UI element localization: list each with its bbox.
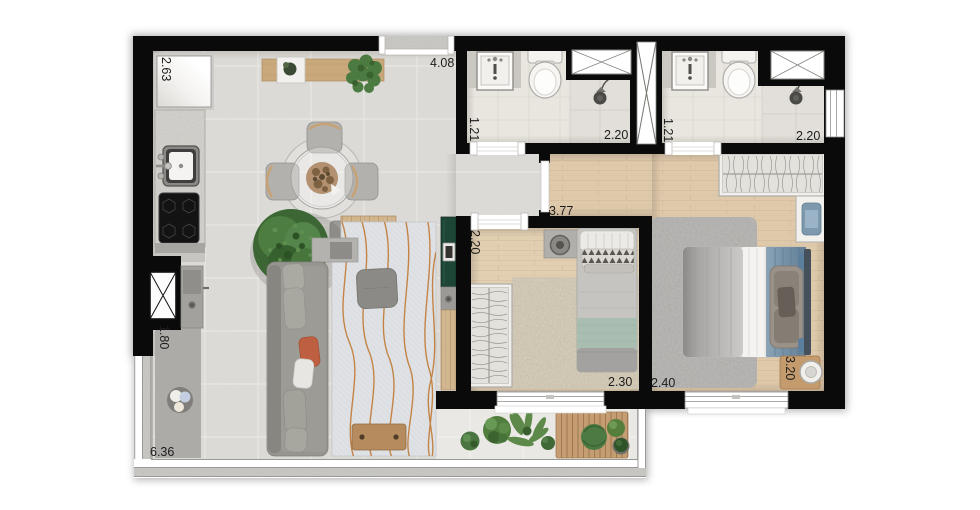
- svg-text:2.20: 2.20: [796, 129, 820, 143]
- svg-text:3.20: 3.20: [783, 356, 797, 380]
- svg-text:1.80: 1.80: [157, 325, 171, 349]
- svg-text:6.36: 6.36: [150, 445, 174, 459]
- svg-text:1.21: 1.21: [661, 118, 675, 142]
- svg-text:2.63: 2.63: [159, 57, 173, 81]
- svg-text:2.30: 2.30: [608, 375, 632, 389]
- svg-text:3.77: 3.77: [549, 204, 573, 218]
- svg-text:1.21: 1.21: [467, 117, 481, 141]
- svg-text:2.20: 2.20: [604, 128, 628, 142]
- svg-text:2.20: 2.20: [468, 230, 482, 254]
- svg-text:2.40: 2.40: [651, 376, 675, 390]
- svg-text:4.08: 4.08: [430, 56, 454, 70]
